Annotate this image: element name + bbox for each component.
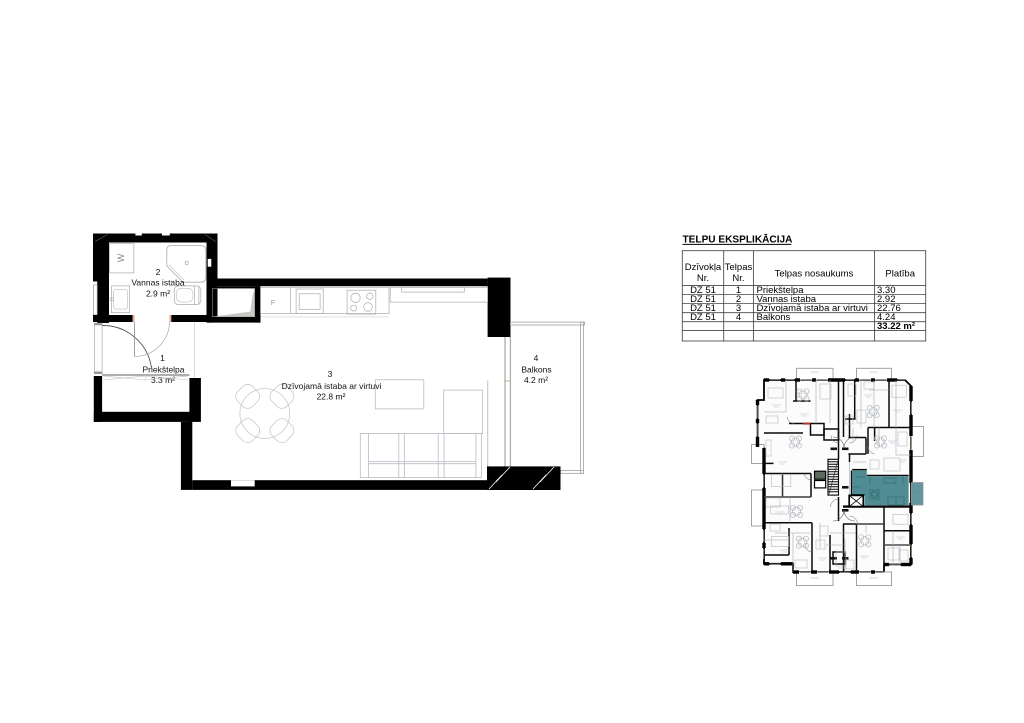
svg-text:F: F <box>271 298 276 307</box>
svg-text:Vannas istaba: Vannas istaba <box>131 278 185 288</box>
svg-text:3: 3 <box>328 369 333 379</box>
svg-text:1: 1 <box>160 353 165 363</box>
svg-text:4: 4 <box>736 312 741 323</box>
svg-text:TELPU EKSPLIKĀCIJA: TELPU EKSPLIKĀCIJA <box>683 234 794 246</box>
svg-text:3.3 m²: 3.3 m² <box>151 375 175 385</box>
svg-text:Telpas nosaukums: Telpas nosaukums <box>775 269 854 280</box>
svg-text:Nr.: Nr. <box>732 273 744 284</box>
svg-text:DZ 51: DZ 51 <box>690 312 716 323</box>
svg-text:4.2 m²: 4.2 m² <box>524 375 548 385</box>
svg-text:Balkons: Balkons <box>521 365 551 375</box>
svg-text:4: 4 <box>534 353 539 363</box>
svg-text:Priekštelpa: Priekštelpa <box>142 365 184 375</box>
svg-text:Balkons: Balkons <box>757 312 791 323</box>
svg-text:Telpas: Telpas <box>725 262 753 273</box>
svg-text:33.22 m²: 33.22 m² <box>877 321 915 332</box>
svg-text:Dzīvojamā istaba ar virtuvi: Dzīvojamā istaba ar virtuvi <box>282 381 382 391</box>
svg-text:22.8 m²: 22.8 m² <box>317 392 346 402</box>
svg-text:Dzīvokļa: Dzīvokļa <box>685 262 722 273</box>
svg-text:Platība: Platība <box>885 269 915 280</box>
svg-text:W: W <box>116 253 126 262</box>
svg-text:Nr.: Nr. <box>697 273 709 284</box>
svg-text:2.9 m²: 2.9 m² <box>146 289 170 299</box>
svg-text:2: 2 <box>156 267 161 277</box>
